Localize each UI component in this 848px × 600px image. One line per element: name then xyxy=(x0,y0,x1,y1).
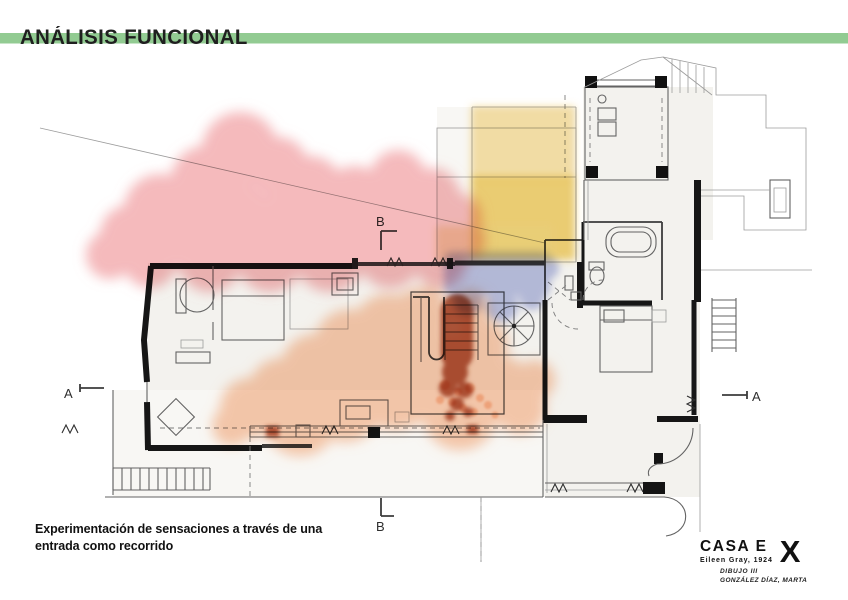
project-name: CASA E xyxy=(700,539,773,555)
slide: ANÁLISIS FUNCIONAL Experimentación de se… xyxy=(0,0,848,600)
x-logo: X xyxy=(780,539,801,564)
project-author: GONZÁLEZ DÍAZ, MARTA xyxy=(720,577,840,584)
section-marker-b-bottom: B xyxy=(376,519,385,534)
red-zone-overlay xyxy=(86,112,485,292)
project-course: DIBUJO III xyxy=(720,568,840,575)
floor-plan: A A B B xyxy=(0,0,848,600)
side-stair xyxy=(712,298,736,352)
project-block: CASA E Eileen Gray, 1924 X DIBUJO III GO… xyxy=(700,539,840,584)
section-marker-a-left: A xyxy=(64,386,73,401)
caption: Experimentación de sensaciones a través … xyxy=(35,521,365,555)
page-title: ANÁLISIS FUNCIONAL xyxy=(20,26,248,50)
caption-line-1: Experimentación de sensaciones a través … xyxy=(35,521,365,538)
project-architect: Eileen Gray, 1924 xyxy=(700,557,773,564)
caption-line-2: entrada como recorrido xyxy=(35,538,365,555)
section-marker-a-right: A xyxy=(752,389,761,404)
